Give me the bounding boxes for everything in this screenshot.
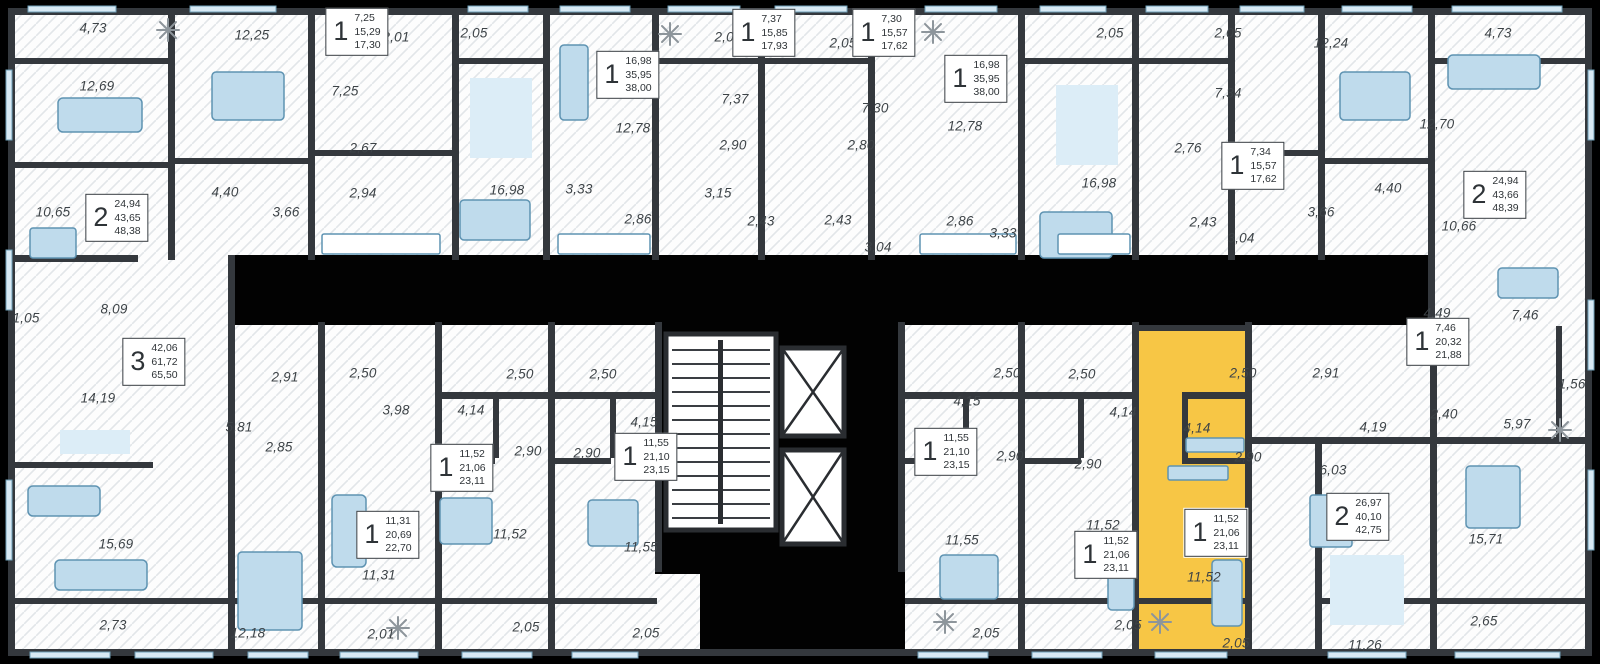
unit-rooms-count: 1 — [952, 65, 967, 92]
unit-area-value: 7,25 — [354, 12, 380, 25]
unit-area-value: 23,11 — [1103, 561, 1129, 574]
unit-area-value: 20,69 — [385, 529, 411, 542]
unit-area-value: 11,55 — [643, 437, 669, 450]
unit-area-value: 42,75 — [1355, 523, 1381, 536]
unit-areas: 7,3415,5717,62 — [1250, 146, 1276, 185]
unit-area-value: 7,30 — [881, 13, 907, 26]
unit-area-value: 7,37 — [761, 13, 787, 26]
unit-area-value: 21,06 — [459, 462, 485, 475]
unit-area-value: 17,62 — [881, 39, 907, 52]
unit-rooms-count: 1 — [1192, 519, 1207, 546]
unit-area-value: 65,50 — [151, 368, 177, 381]
unit-rooms-count: 3 — [130, 348, 145, 375]
unit-info-box[interactable]: 111,5521,1023,15 — [914, 428, 977, 476]
unit-area-value: 17,93 — [761, 39, 787, 52]
unit-areas: 7,2515,2917,30 — [354, 12, 380, 51]
floor-plan-structure — [0, 0, 1600, 664]
unit-info-box[interactable]: 17,3715,8517,93 — [732, 9, 795, 57]
unit-info-box[interactable]: 224,9443,6548,38 — [85, 194, 148, 242]
unit-info-box[interactable]: 111,5221,0623,11 — [430, 444, 493, 492]
unit-rooms-count: 1 — [1082, 541, 1097, 568]
unit-area-value: 17,30 — [354, 38, 380, 51]
unit-area-value: 24,94 — [1492, 175, 1518, 188]
unit-area-value: 15,57 — [1250, 160, 1276, 173]
unit-area-value: 26,97 — [1355, 497, 1381, 510]
unit-rooms-count: 1 — [438, 454, 453, 481]
unit-rooms-count: 1 — [1229, 152, 1244, 179]
unit-info-box[interactable]: 111,5521,1023,15 — [614, 433, 677, 481]
unit-area-value: 11,52 — [459, 448, 485, 461]
unit-rooms-count: 1 — [333, 18, 348, 45]
unit-info-box[interactable]: 224,9443,6648,39 — [1463, 171, 1526, 219]
unit-area-value: 42,06 — [151, 342, 177, 355]
unit-areas: 11,5221,0623,11 — [1213, 513, 1239, 552]
unit-areas: 16,9835,9538,00 — [625, 55, 651, 94]
unit-info-box[interactable]: 17,3015,5717,62 — [852, 9, 915, 57]
unit-area-value: 23,15 — [643, 463, 669, 476]
unit-area-value: 38,00 — [973, 85, 999, 98]
unit-area-value: 20,32 — [1435, 336, 1461, 349]
unit-areas: 7,3015,5717,62 — [881, 13, 907, 52]
unit-info-box[interactable]: 226,9740,1042,75 — [1326, 493, 1389, 541]
unit-rooms-count: 1 — [922, 438, 937, 465]
unit-area-value: 23,15 — [943, 458, 969, 471]
unit-area-value: 15,29 — [354, 26, 380, 39]
unit-area-value: 23,11 — [1213, 539, 1239, 552]
unit-info-box[interactable]: 17,3415,5717,62 — [1221, 142, 1284, 190]
unit-info-box[interactable]: 111,5221,0623,11 — [1184, 509, 1247, 557]
unit-area-value: 38,00 — [625, 81, 651, 94]
unit-area-value: 17,62 — [1250, 172, 1276, 185]
unit-area-value: 40,10 — [1355, 511, 1381, 524]
elevator-icon — [782, 450, 844, 544]
unit-area-value: 16,98 — [973, 59, 999, 72]
unit-area-value: 24,94 — [114, 198, 140, 211]
unit-info-box[interactable]: 17,2515,2917,30 — [325, 8, 388, 56]
unit-area-value: 16,98 — [625, 55, 651, 68]
unit-rooms-count: 2 — [1334, 503, 1349, 530]
unit-info-box[interactable]: 116,9835,9538,00 — [944, 55, 1007, 103]
unit-info-box[interactable]: 116,9835,9538,00 — [596, 51, 659, 99]
unit-areas: 7,3715,8517,93 — [761, 13, 787, 52]
unit-areas: 7,4620,3221,88 — [1435, 322, 1461, 361]
unit-rooms-count: 1 — [860, 19, 875, 46]
unit-areas: 11,5521,1023,15 — [943, 432, 969, 471]
unit-area-value: 48,38 — [114, 224, 140, 237]
unit-rooms-count: 1 — [740, 19, 755, 46]
unit-info-box[interactable]: 111,5221,0623,11 — [1074, 531, 1137, 579]
unit-areas: 24,9443,6648,39 — [1492, 175, 1518, 214]
unit-area-value: 21,10 — [643, 451, 669, 464]
unit-area-value: 21,10 — [943, 446, 969, 459]
unit-areas: 26,9740,1042,75 — [1355, 497, 1381, 536]
unit-rooms-count: 1 — [1414, 328, 1429, 355]
unit-area-value: 23,11 — [459, 474, 485, 487]
unit-area-value: 21,06 — [1213, 527, 1239, 540]
unit-area-value: 15,85 — [761, 27, 787, 40]
unit-area-value: 11,52 — [1103, 535, 1129, 548]
unit-area-value: 21,88 — [1435, 348, 1461, 361]
unit-area-value: 15,57 — [881, 27, 907, 40]
elevator-icon — [782, 348, 844, 436]
unit-area-value: 43,65 — [114, 212, 140, 225]
unit-info-box[interactable]: 111,3120,6922,70 — [356, 511, 419, 559]
unit-rooms-count: 2 — [93, 204, 108, 231]
unit-area-value: 7,46 — [1435, 322, 1461, 335]
unit-area-value: 43,66 — [1492, 189, 1518, 202]
staircase-icon — [666, 334, 776, 530]
unit-area-value: 11,52 — [1213, 513, 1239, 526]
unit-areas: 16,9835,9538,00 — [973, 59, 999, 98]
unit-area-value: 11,55 — [943, 432, 969, 445]
unit-areas: 11,5221,0623,11 — [1103, 535, 1129, 574]
unit-area-value: 7,34 — [1250, 146, 1276, 159]
selected-unit-overlay[interactable] — [1139, 328, 1245, 650]
unit-areas: 11,3120,6922,70 — [385, 515, 411, 554]
unit-area-value: 61,72 — [151, 356, 177, 369]
unit-area-value: 35,95 — [973, 73, 999, 86]
unit-info-box[interactable]: 342,0661,7265,50 — [122, 338, 185, 386]
unit-area-value: 21,06 — [1103, 549, 1129, 562]
unit-area-value: 22,70 — [385, 541, 411, 554]
unit-info-box[interactable]: 17,4620,3221,88 — [1406, 318, 1469, 366]
floor-plan-page: 4,7312,252,012,0512,697,252,672,944,403,… — [0, 0, 1600, 664]
unit-rooms-count: 2 — [1471, 181, 1486, 208]
unit-areas: 42,0661,7265,50 — [151, 342, 177, 381]
unit-rooms-count: 1 — [364, 521, 379, 548]
unit-area-value: 11,31 — [385, 515, 411, 528]
unit-rooms-count: 1 — [604, 61, 619, 88]
unit-rooms-count: 1 — [622, 443, 637, 470]
unit-areas: 11,5521,1023,15 — [643, 437, 669, 476]
unit-area-value: 35,95 — [625, 69, 651, 82]
unit-areas: 24,9443,6548,38 — [114, 198, 140, 237]
unit-area-value: 48,39 — [1492, 201, 1518, 214]
unit-areas: 11,5221,0623,11 — [459, 448, 485, 487]
